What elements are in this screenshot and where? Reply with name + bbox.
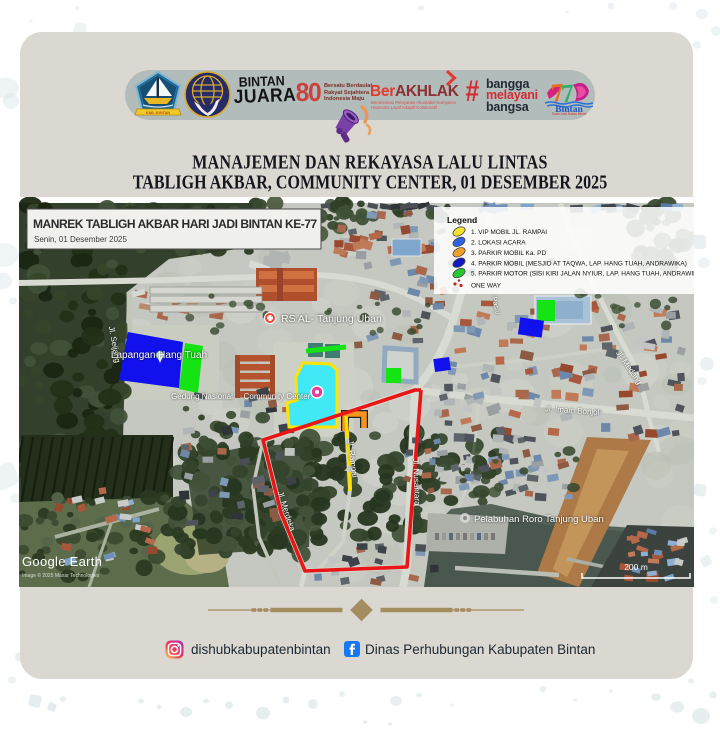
svg-text:Legend: Legend <box>447 215 477 225</box>
svg-text:KAB. BINTAN: KAB. BINTAN <box>146 110 171 115</box>
svg-text:Image © 2025 Maxar Technologie: Image © 2025 Maxar Technologies <box>22 572 100 579</box>
svg-text:200 m: 200 m <box>624 562 648 572</box>
svg-text:Google Earth: Google Earth <box>22 554 102 569</box>
svg-text:Lapangan Hang Tuah: Lapangan Hang Tuah <box>111 350 207 361</box>
svg-text:RS AL- Tanjung Uban: RS AL- Tanjung Uban <box>281 313 382 325</box>
svg-text:1. VIP MOBIL JL. RAMPAI: 1. VIP MOBIL JL. RAMPAI <box>471 229 547 236</box>
svg-text:4. PARKIR MOBIL (MESJID AT TAQ: 4. PARKIR MOBIL (MESJID AT TAQWA, LAP. H… <box>471 260 687 267</box>
svg-text:Gedung Nasional: Gedung Nasional <box>171 392 233 401</box>
svg-text:3. PARKIR MOBIL Ka. PD: 3. PARKIR MOBIL Ka. PD <box>471 250 546 257</box>
svg-text:5. PARKIR MOTOR (SISI KIRI JAL: 5. PARKIR MOTOR (SISI KIRI JALAN NYIUR, … <box>471 271 694 278</box>
svg-text:MANREK TABLIGH AKBAR HARI JADI: MANREK TABLIGH AKBAR HARI JADI BINTAN KE… <box>33 217 318 231</box>
svg-text:2. LOKASI ACARA: 2. LOKASI ACARA <box>471 240 526 247</box>
svg-text:Senin, 01 Desember 2025: Senin, 01 Desember 2025 <box>34 235 128 244</box>
svg-text:Pelabuhan Roro Tanjung Uban: Pelabuhan Roro Tanjung Uban <box>474 514 604 525</box>
svg-text:Tiada Janji Bukan Mimpi: Tiada Janji Bukan Mimpi <box>552 112 587 115</box>
svg-text:ONE WAY: ONE WAY <box>471 283 502 290</box>
svg-text:Community Center: Community Center <box>244 392 311 401</box>
svg-text:Jl. Nusantara: Jl. Nusantara <box>411 458 422 506</box>
